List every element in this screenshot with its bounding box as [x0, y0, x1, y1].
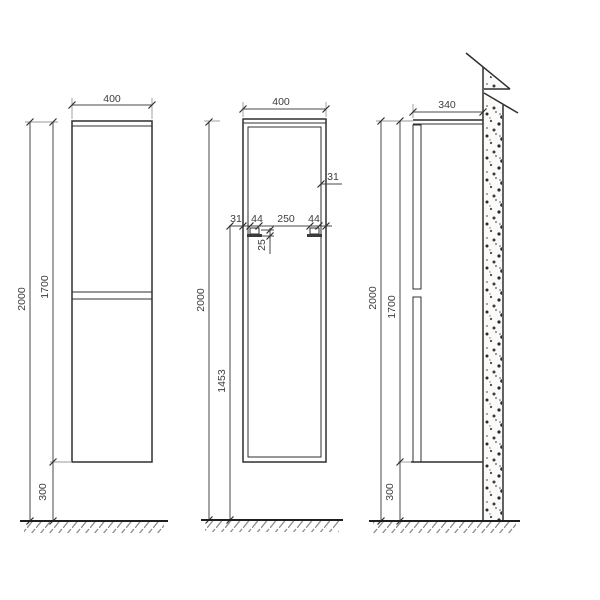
side-ground-hatch — [373, 522, 516, 533]
bracket-width-left-label: 44 — [251, 213, 263, 225]
front-width-label: 400 — [103, 93, 121, 105]
side-dimensions: 340 2000 1700 300 — [367, 99, 487, 525]
bracket-drop-label: 25 — [256, 239, 268, 251]
wall-section — [466, 53, 518, 521]
front-total-height-label: 2000 — [16, 287, 28, 311]
side-upper-door — [413, 125, 421, 289]
mounting-bracket-right — [307, 228, 322, 237]
carcass-ground — [201, 520, 343, 532]
side-view: 340 2000 1700 300 — [367, 53, 520, 533]
side-depth-label: 340 — [438, 99, 456, 111]
carcass-cabinet — [243, 119, 326, 462]
bracket-spacing-label: 250 — [277, 213, 295, 225]
bracket-width-right-label: 44 — [308, 213, 320, 225]
carcass-view: 400 31 44 250 44 25 31 — [195, 96, 343, 532]
technical-drawing: 400 2000 1700 300 — [0, 0, 600, 600]
side-cabinet — [398, 120, 483, 462]
side-ground — [369, 521, 520, 533]
side-cabinet-height-label: 1700 — [386, 295, 398, 319]
front-cabinet — [72, 121, 152, 462]
front-floor-clearance-label: 300 — [37, 483, 49, 501]
front-dimensions: 400 2000 1700 300 — [16, 93, 156, 525]
carcass-ground-hatch — [205, 521, 339, 532]
side-total-height-label: 2000 — [367, 286, 379, 310]
side-floor-clearance-label: 300 — [384, 483, 396, 501]
drawing-canvas: 400 2000 1700 300 — [0, 0, 600, 600]
front-ground-hatch — [24, 522, 164, 533]
side-lower-door — [413, 297, 421, 462]
front-cabinet-height-label: 1700 — [39, 275, 51, 299]
carcass-outline — [243, 119, 326, 462]
front-ground — [20, 521, 168, 533]
wall-fill-top — [484, 70, 502, 88]
front-view: 400 2000 1700 300 — [16, 93, 168, 533]
wall-fill — [484, 95, 502, 520]
mounting-bracket-left — [247, 228, 262, 237]
bracket-edge-offset-label: 31 — [230, 213, 242, 225]
carcass-inner-outline — [248, 127, 321, 457]
carcass-width-label: 400 — [272, 96, 290, 108]
carcass-dimensions: 400 31 44 250 44 25 31 — [195, 96, 342, 524]
side-panel-offset-label: 31 — [327, 171, 339, 183]
bracket-height-label: 1453 — [216, 369, 228, 393]
carcass-total-height-label: 2000 — [195, 288, 207, 312]
